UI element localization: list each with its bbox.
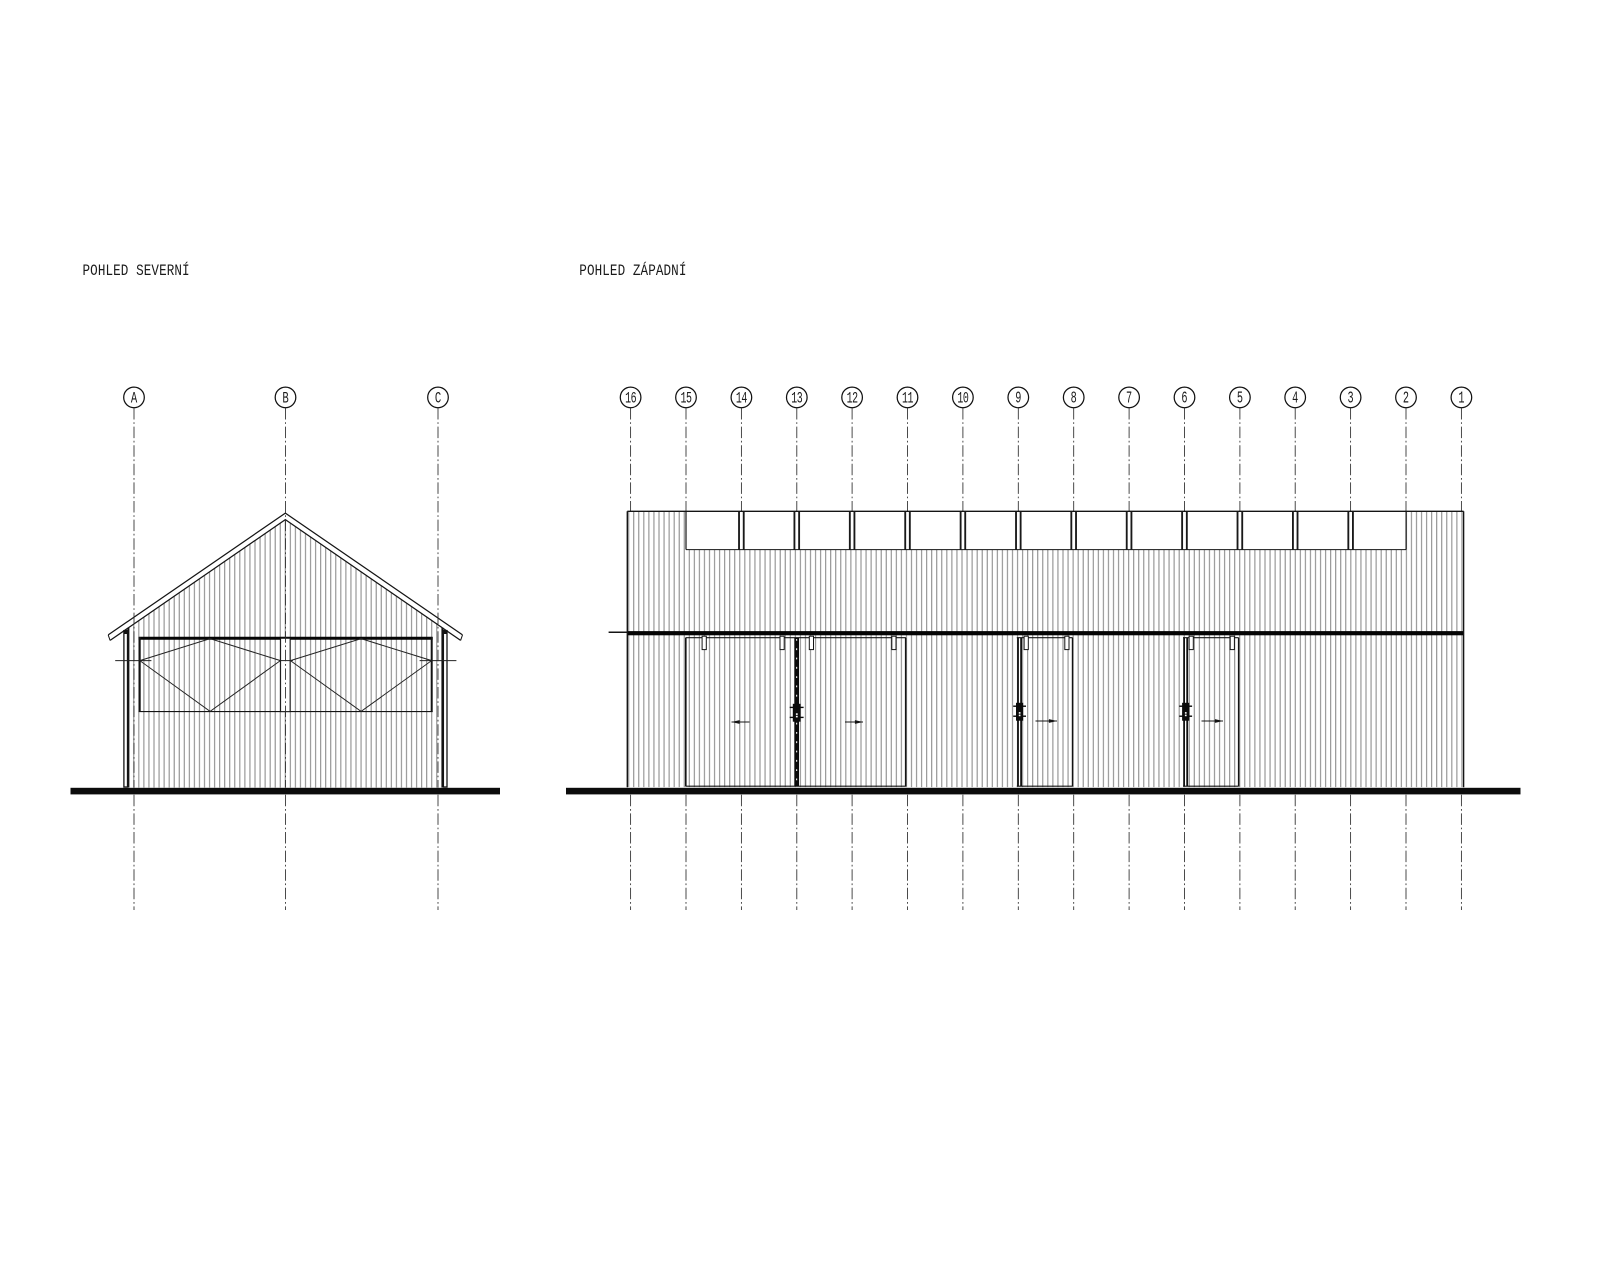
svg-text:15: 15 xyxy=(680,389,692,407)
svg-text:16: 16 xyxy=(625,389,637,407)
svg-text:13: 13 xyxy=(791,389,803,407)
svg-text:B: B xyxy=(282,391,288,409)
svg-text:2: 2 xyxy=(1403,391,1409,409)
svg-text:8: 8 xyxy=(1071,391,1077,409)
svg-text:POHLED SEVERNÍ: POHLED SEVERNÍ xyxy=(83,261,190,281)
svg-text:POHLED ZÁPADNÍ: POHLED ZÁPADNÍ xyxy=(579,261,686,281)
svg-text:14: 14 xyxy=(736,389,748,407)
svg-text:9: 9 xyxy=(1015,391,1021,409)
svg-text:11: 11 xyxy=(902,389,914,407)
svg-text:1: 1 xyxy=(1458,391,1464,409)
svg-text:10: 10 xyxy=(957,389,969,407)
svg-text:A: A xyxy=(131,391,138,409)
svg-text:5: 5 xyxy=(1237,391,1243,409)
svg-text:7: 7 xyxy=(1126,391,1132,409)
svg-text:6: 6 xyxy=(1181,391,1187,409)
svg-text:12: 12 xyxy=(847,389,858,407)
svg-text:3: 3 xyxy=(1348,391,1354,409)
svg-text:C: C xyxy=(435,391,441,409)
svg-text:4: 4 xyxy=(1292,391,1298,409)
